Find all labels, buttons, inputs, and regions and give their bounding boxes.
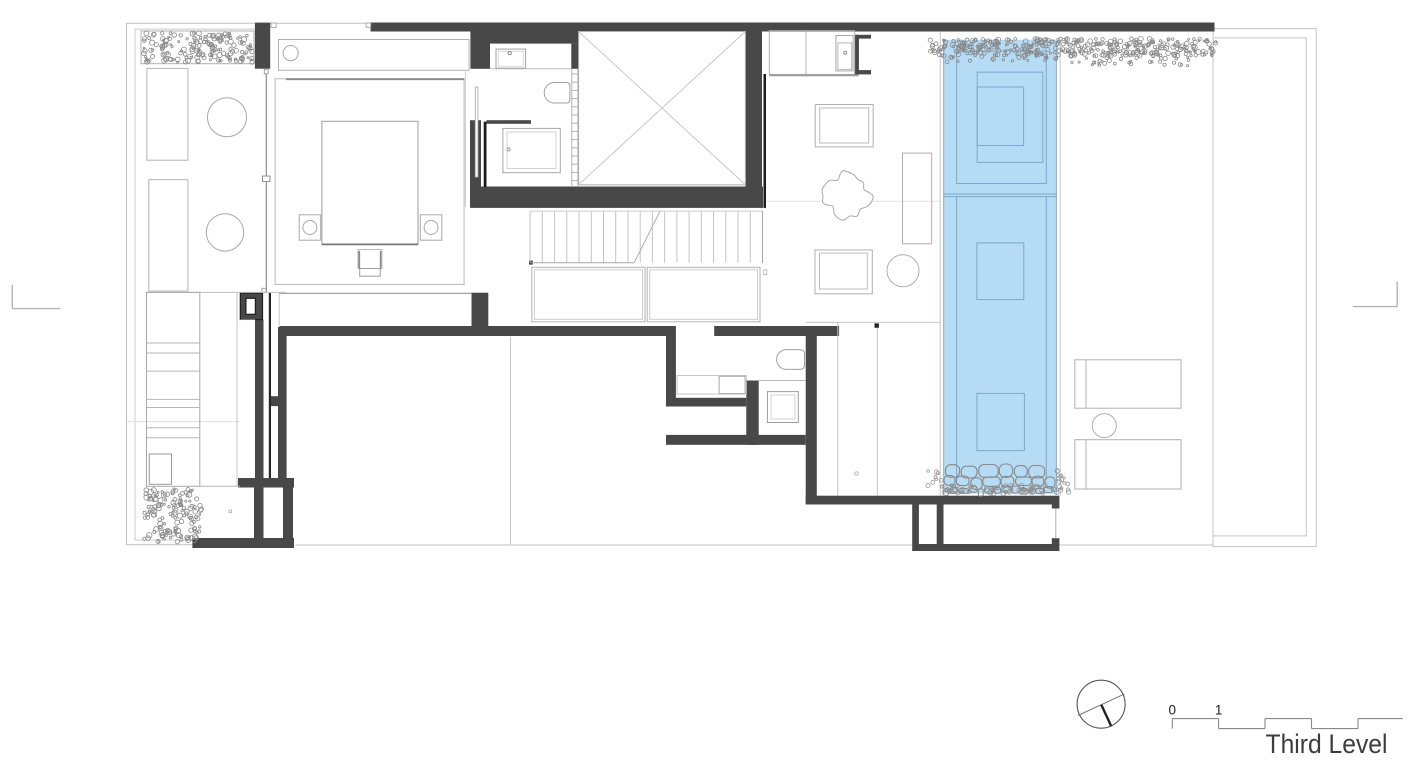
svg-text:1: 1 — [1215, 703, 1223, 718]
svg-text:0: 0 — [1169, 703, 1177, 718]
svg-text:Third Level: Third Level — [1266, 729, 1388, 759]
